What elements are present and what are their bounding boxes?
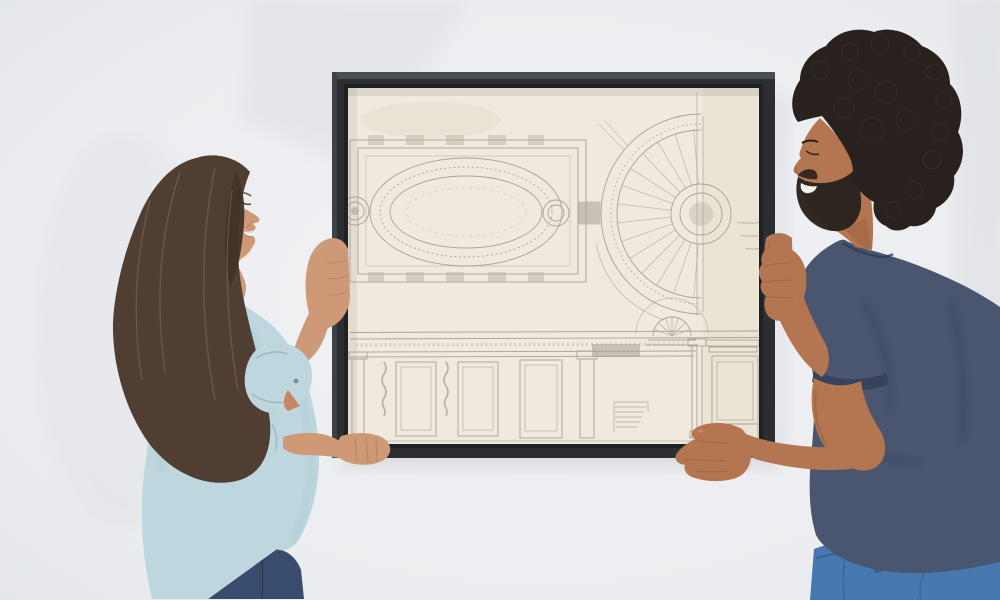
photo-scene: [0, 0, 1000, 600]
vignette: [0, 0, 1000, 600]
